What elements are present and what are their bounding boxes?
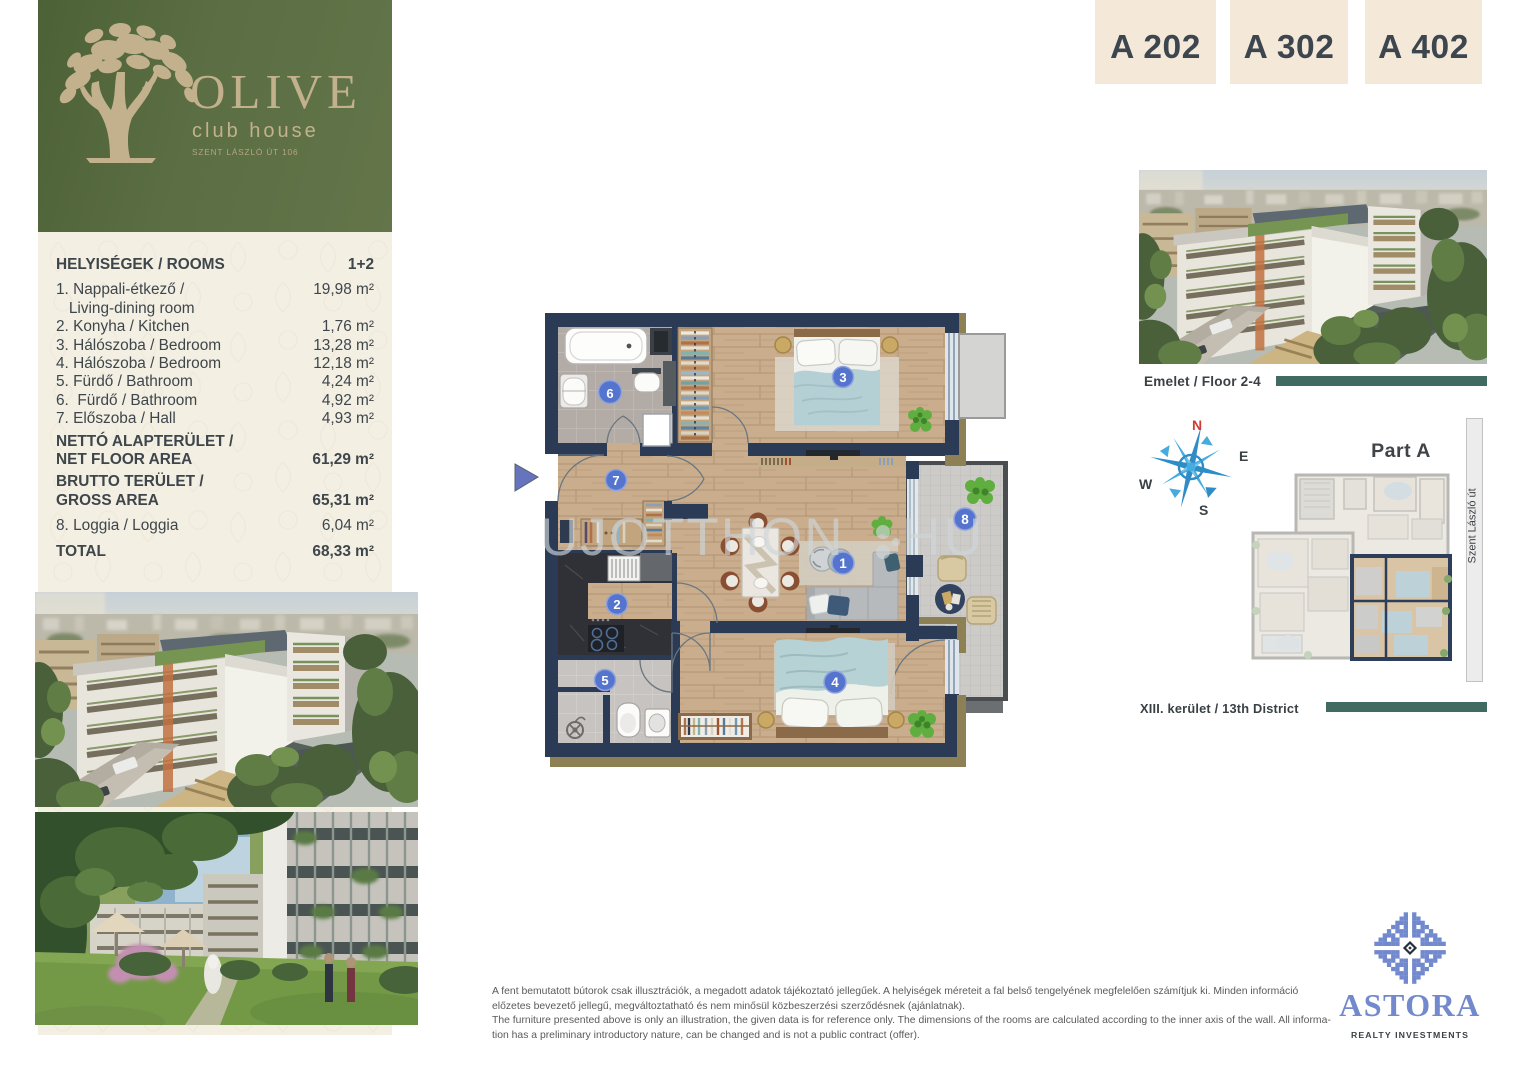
svg-text:4: 4 (831, 675, 839, 690)
svg-text:ASTORA: ASTORA (1339, 987, 1481, 1023)
svg-text:OLIVE: OLIVE (190, 64, 362, 119)
svg-text:W: W (1139, 476, 1153, 492)
svg-text:5: 5 (601, 673, 608, 688)
svg-text:HU: HU (902, 508, 986, 564)
svg-text:2: 2 (613, 597, 620, 612)
svg-text:REALTY INVESTMENTS: REALTY INVESTMENTS (1351, 1030, 1469, 1040)
svg-text:N: N (1192, 417, 1202, 433)
svg-text:SZENT LÁSZLÓ ÚT 106: SZENT LÁSZLÓ ÚT 106 (192, 147, 298, 157)
svg-text:3: 3 (839, 370, 846, 385)
svg-text:E: E (1239, 448, 1248, 464)
svg-text:UJOTTHON: UJOTTHON (540, 508, 845, 564)
svg-text:7: 7 (612, 473, 619, 488)
svg-text:club house: club house (192, 120, 319, 142)
svg-text:S: S (1199, 502, 1208, 518)
svg-text:6: 6 (606, 386, 613, 401)
